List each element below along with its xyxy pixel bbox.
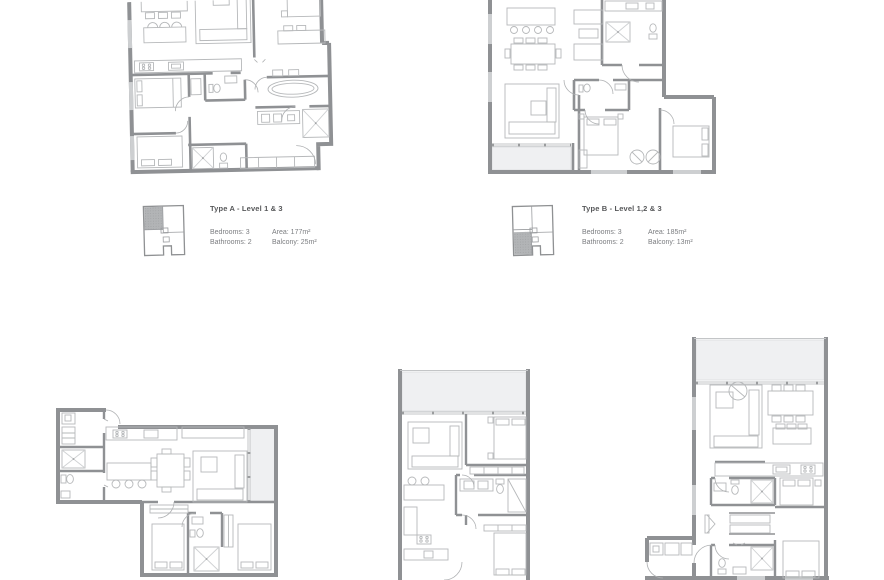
sofa-icon [193, 451, 247, 502]
shelf-icon [62, 427, 75, 444]
fridge-icon [62, 413, 75, 424]
interior-walls [456, 414, 528, 525]
kitchen-counter-icon [404, 507, 448, 560]
closet-icon [730, 515, 770, 533]
shower-icon [751, 547, 773, 570]
balcony-area [492, 147, 571, 170]
closet-icon [470, 467, 524, 474]
slider-window [696, 382, 824, 384]
bed-icon [579, 114, 623, 155]
door-arcs [564, 65, 674, 124]
dining-table-icon [505, 38, 561, 70]
sofa-icon [773, 424, 811, 444]
furniture [650, 382, 823, 578]
unit-label-type-b: Type B - Level 1,2 & 3 Bedrooms: 3 Bathr… [511, 204, 693, 258]
shower-icon [194, 547, 219, 571]
bed-icon [494, 533, 526, 575]
closet-icon [484, 525, 526, 531]
unit-bedrooms: Bedrooms: 3 [210, 228, 272, 238]
floor-plan-type-a [125, 0, 335, 180]
kitchen-island-icon [144, 22, 186, 43]
floor-plan-bottom-left [56, 407, 278, 580]
furniture [133, 0, 330, 171]
interior-walls [711, 462, 826, 578]
unit-area: Area: 177m² [272, 228, 317, 238]
floor-plan-bottom-middle [396, 367, 532, 580]
sink-icon [192, 517, 203, 524]
shower-icon [606, 22, 630, 42]
chair-icon [630, 150, 644, 164]
toilet-icon [649, 24, 657, 39]
slider-window [492, 144, 571, 146]
toilet-icon [579, 84, 590, 92]
floorplan-sheet: Type A - Level 1 & 3 Bedrooms: 3 Bathroo… [0, 0, 884, 580]
closet-icon [150, 505, 188, 513]
toilet-icon [61, 475, 73, 484]
bed-icon [137, 136, 183, 168]
toilet-icon [496, 479, 504, 493]
kitchen-island-icon [507, 8, 555, 34]
shower-icon [62, 450, 85, 468]
toilet-icon [718, 559, 726, 574]
furniture [61, 413, 271, 571]
balcony-area [250, 428, 275, 501]
bed-icon [673, 126, 709, 157]
unit-bathrooms: Bathrooms: 2 [210, 238, 272, 248]
sofa-icon [195, 0, 251, 44]
unit-bathrooms: Bathrooms: 2 [582, 238, 648, 248]
unit-label-type-a: Type A - Level 1 & 3 Bedrooms: 3 Bathroo… [142, 204, 317, 258]
sofa-icon [574, 10, 603, 60]
bed-icon [135, 78, 182, 108]
dining-table-icon [141, 0, 188, 19]
sofa-icon [408, 422, 462, 469]
balcony-area [696, 340, 824, 380]
slider-window [248, 428, 250, 501]
toilet-icon [219, 153, 227, 168]
vanity-icon [460, 479, 493, 491]
toilet-icon [190, 529, 203, 538]
slider-window [402, 412, 526, 414]
bed-icon [488, 417, 526, 459]
kitchen-counter-icon [715, 463, 823, 476]
laundry-counter-icon [605, 1, 662, 11]
keyplan-icon-type-b [510, 203, 556, 258]
unit-balcony: Balcony: 13m² [648, 238, 693, 248]
sink-icon [714, 483, 726, 491]
sink-icon [615, 84, 626, 90]
bed-icon [238, 524, 271, 570]
washer-icon [650, 543, 663, 555]
unit-title: Type A - Level 1 & 3 [210, 204, 317, 213]
closet-icon [224, 515, 233, 547]
bed-icon [152, 524, 184, 570]
sink-icon [61, 491, 70, 498]
unit-specs: Bedrooms: 3 Bathrooms: 2 Area: 185m² Bal… [582, 228, 693, 247]
sink-icon [225, 76, 237, 83]
dining-table-icon [768, 385, 813, 422]
kitchen-island-icon [107, 463, 151, 488]
unit-balcony: Balcony: 25m² [272, 238, 317, 248]
bed-icon [780, 478, 821, 505]
unit-bedrooms: Bedrooms: 3 [582, 228, 648, 238]
balcony-area [402, 372, 526, 411]
shower-icon [302, 109, 329, 138]
shower-icon [192, 147, 213, 168]
furniture [505, 1, 709, 168]
sofa-icon [505, 84, 559, 138]
unit-area: Area: 185m² [648, 228, 693, 238]
wardrobe-icon [278, 25, 325, 44]
sofa-icon [710, 385, 762, 448]
bathtub-icon [268, 69, 319, 98]
unit-info: Type A - Level 1 & 3 Bedrooms: 3 Bathroo… [210, 204, 317, 247]
dining-table-icon [151, 449, 190, 492]
double-door-icon [705, 515, 715, 533]
unit-title: Type B - Level 1,2 & 3 [582, 204, 693, 213]
desk-icon [191, 79, 201, 95]
bed-icon [783, 541, 819, 578]
wardrobe-icon [508, 479, 526, 512]
bed-icon [281, 0, 321, 17]
kitchen-island-icon [404, 477, 444, 500]
unit-specs: Bedrooms: 3 Bathrooms: 2 Area: 177m² Bal… [210, 228, 317, 247]
keyplan-icon-type-a [141, 203, 187, 258]
chair-icon [646, 150, 660, 164]
cabinet-icon [665, 543, 692, 555]
toilet-icon [209, 84, 220, 93]
toilet-icon [731, 480, 739, 494]
floor-plan-bottom-right [645, 335, 831, 580]
kitchen-counter-icon [134, 59, 241, 73]
sink-icon [733, 567, 746, 574]
window-segments [130, 20, 133, 160]
floor-plan-type-b [487, 0, 716, 175]
shower-icon [751, 480, 773, 503]
unit-info: Type B - Level 1,2 & 3 Bedrooms: 3 Bathr… [582, 204, 693, 247]
vanity-icon [257, 111, 299, 125]
